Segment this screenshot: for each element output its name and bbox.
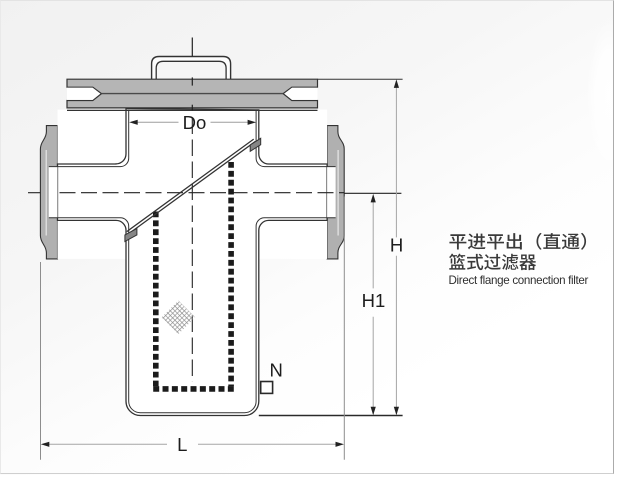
svg-text:H: H xyxy=(390,235,403,256)
svg-text:H1: H1 xyxy=(362,290,386,311)
svg-text:N: N xyxy=(270,360,283,381)
svg-text:Do: Do xyxy=(183,112,207,133)
svg-text:L: L xyxy=(177,434,187,455)
